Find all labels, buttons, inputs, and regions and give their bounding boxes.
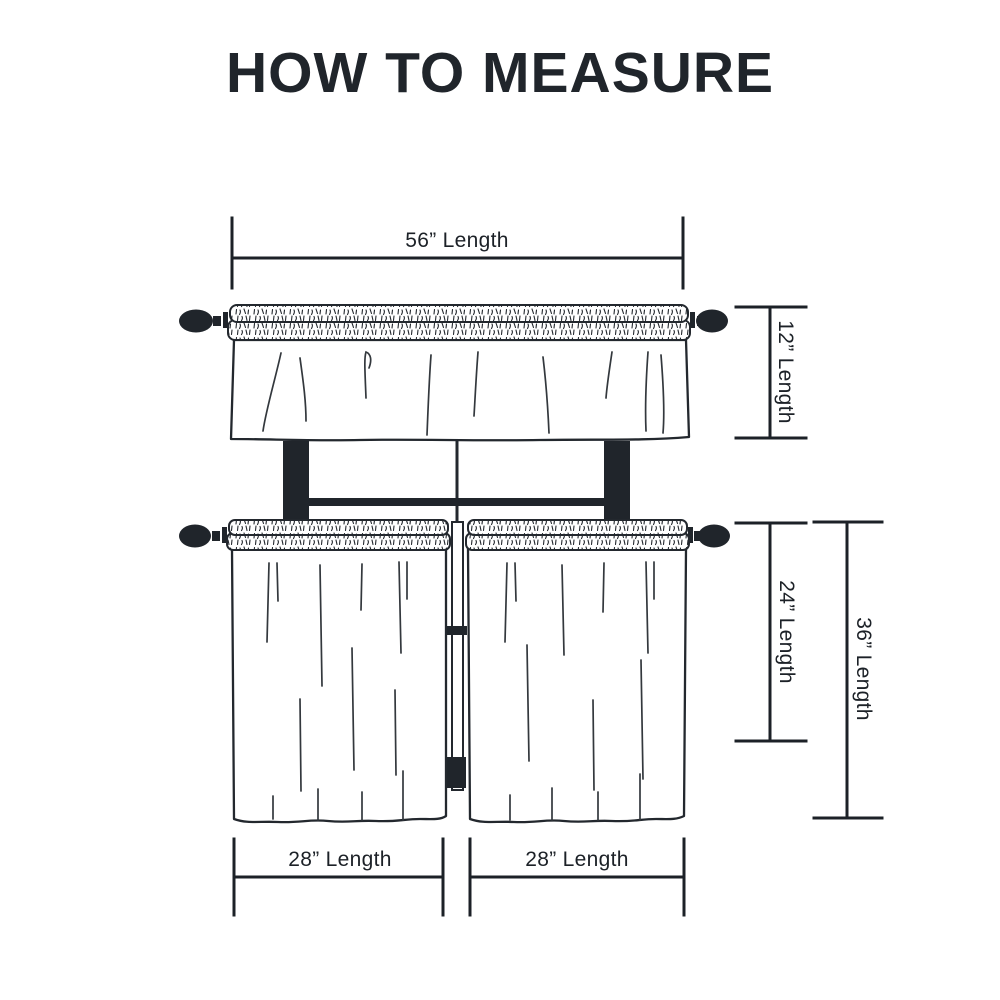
dim-right-tier-width: 28” Length (470, 839, 684, 915)
window-rail (283, 498, 630, 506)
tier-finial-right-icon (698, 525, 730, 548)
dim-right-tier-width-label: 28” Length (525, 848, 628, 871)
dim-valance-height-label: 12” Length (774, 320, 797, 423)
dim-valance-width: 56” Length (232, 218, 683, 288)
how-to-measure-diagram: HOW TO MEASURE (0, 0, 1000, 1000)
dim-valance-height: 12” Length (736, 307, 806, 438)
valance (228, 305, 690, 440)
window-post-left (283, 441, 309, 522)
dim-left-tier-width: 28” Length (234, 839, 443, 915)
dim-total-height-label: 36” Length (852, 617, 875, 720)
window-meeting-rail (446, 626, 467, 635)
dim-left-tier-width-label: 28” Length (288, 848, 391, 871)
tier-left-body (232, 549, 446, 822)
window-center-mullion (452, 522, 463, 790)
tier-finial-left-icon (179, 525, 211, 548)
dim-tier-height-label: 24” Length (775, 580, 798, 683)
valance-body (231, 340, 689, 440)
tier-left-rod-pocket-upper (229, 520, 448, 535)
curtain-measurement-drawing: 56” Length 12” Length 24” Length 36” Len… (0, 0, 1000, 1000)
tier-curtain-right (466, 520, 689, 822)
dim-valance-width-label: 56” Length (405, 229, 508, 252)
window-sash-lock (447, 757, 466, 788)
dim-tier-height: 24” Length (736, 523, 806, 741)
valance-rod-pocket-upper (230, 305, 688, 322)
tier-curtain-left (227, 520, 450, 822)
tier-right-rod-pocket-upper (468, 520, 687, 535)
valance-finial-left-icon (179, 310, 213, 333)
dim-total-height: 36” Length (814, 522, 882, 818)
window-post-right (604, 441, 630, 522)
